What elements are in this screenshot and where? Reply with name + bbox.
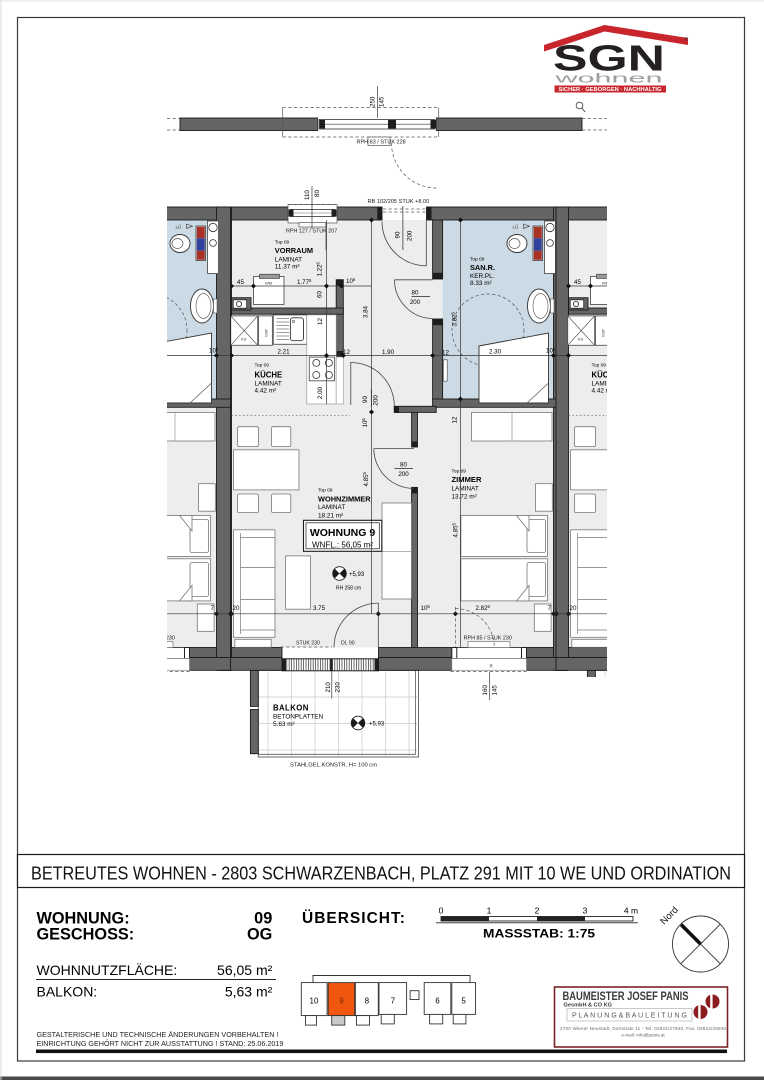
svg-text:GESTALTERISCHE UND TECHNISCHE: GESTALTERISCHE UND TECHNISCHE ÄNDERUNGEN… xyxy=(37,1030,279,1039)
svg-text:5,63 m²: 5,63 m² xyxy=(225,983,273,999)
svg-text:2: 2 xyxy=(535,906,540,916)
svg-text:10: 10 xyxy=(310,997,319,1006)
svg-text:®: ® xyxy=(685,36,689,43)
svg-text:P L A N U N G & B A U L E I: P L A N U N G & B A U L E I T U N G xyxy=(572,1011,687,1020)
svg-text:2700 Wiener Neustadt, Dornstal: 2700 Wiener Neustadt, Dornstale 11 - Tel… xyxy=(560,1026,726,1031)
svg-text:4 m: 4 m xyxy=(624,906,638,916)
svg-text:0: 0 xyxy=(439,906,444,916)
svg-text:9: 9 xyxy=(339,997,344,1006)
svg-text:RPH 83 / STUK 228: RPH 83 / STUK 228 xyxy=(357,140,406,146)
svg-text:wohnen: wohnen xyxy=(553,71,662,86)
svg-text:MASSSTAB: 1:75: MASSSTAB: 1:75 xyxy=(483,927,595,941)
svg-text:GESCHOSS:: GESCHOSS: xyxy=(37,926,135,944)
svg-text:OG: OG xyxy=(247,926,272,944)
svg-text:1: 1 xyxy=(487,906,492,916)
svg-text:145: 145 xyxy=(379,96,386,107)
svg-text:3: 3 xyxy=(583,906,588,916)
svg-text:5: 5 xyxy=(461,997,466,1006)
svg-text:BALKON:: BALKON: xyxy=(37,983,98,999)
svg-text:250: 250 xyxy=(370,96,377,107)
svg-text:ÜBERSICHT:: ÜBERSICHT: xyxy=(302,910,406,927)
svg-text:e-mail: info@panis.at: e-mail: info@panis.at xyxy=(621,1033,665,1038)
svg-text:EINRICHTUNG GEHÖRT NICHT ZUR A: EINRICHTUNG GEHÖRT NICHT ZUR AUSSTATTUNG… xyxy=(37,1039,284,1048)
svg-text:8: 8 xyxy=(365,997,370,1006)
svg-text:7: 7 xyxy=(391,997,396,1006)
svg-text:WOHNNUTZFLÄCHE:: WOHNNUTZFLÄCHE: xyxy=(37,962,178,978)
svg-text:SICHER · GEBORGEN · NACHHALTIG: SICHER · GEBORGEN · NACHHALTIG xyxy=(559,87,662,93)
svg-text:6: 6 xyxy=(435,997,440,1006)
svg-text:GesmbH & CO KG: GesmbH & CO KG xyxy=(564,1002,613,1008)
svg-text:56,05 m²: 56,05 m² xyxy=(217,962,273,978)
svg-text:BAUMEISTER JOSEF PANIS: BAUMEISTER JOSEF PANIS xyxy=(563,991,689,1003)
svg-text:BETREUTES WOHNEN - 2803 SCHWAR: BETREUTES WOHNEN - 2803 SCHWARZENBACH, P… xyxy=(31,863,731,884)
